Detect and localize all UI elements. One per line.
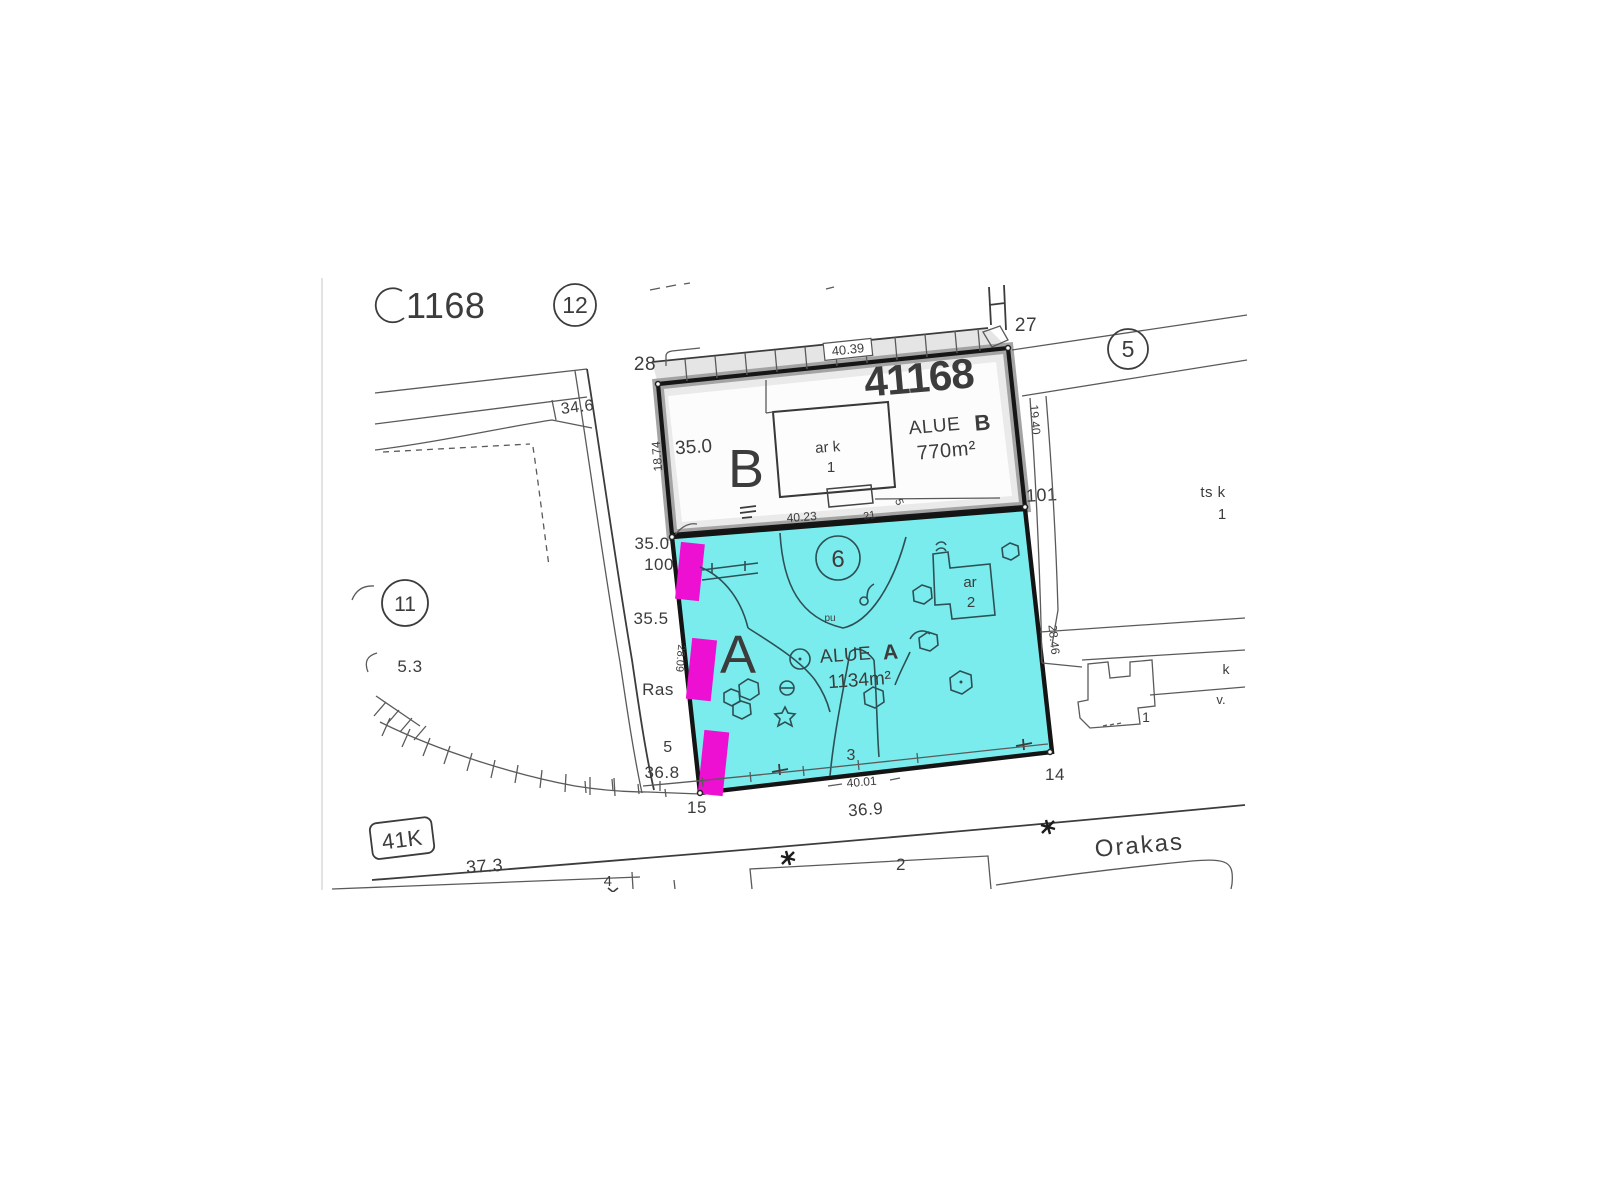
building-a-number: 2 <box>967 594 975 611</box>
corner-15: 15 <box>687 798 707 817</box>
building-a-label: ar <box>963 574 976 591</box>
pu-note: pu <box>824 613 835 624</box>
elevation-36-9: 36.9 <box>847 799 883 820</box>
right-building-number: 1 <box>1142 709 1150 725</box>
elevation-5-3: 5.3 <box>397 657 422 676</box>
area-a-size: 1134m² <box>827 668 891 693</box>
overlay-letter-a: A <box>720 625 756 685</box>
ras-label: Ras <box>642 680 674 699</box>
building-b-label: ar k <box>815 438 842 457</box>
dim-a-left-28-09: 28.09 <box>673 644 687 672</box>
ts-k-label: ts k <box>1200 484 1225 501</box>
elevation-35-5: 35.5 <box>633 609 668 628</box>
dim-a-bottom-40-01: 40.01 <box>846 774 877 791</box>
elevation-36-8: 36.8 <box>644 763 679 782</box>
building-b-number: 1 <box>827 459 835 476</box>
circle-5-label: 5 <box>1122 336 1135 362</box>
alue-a-word: ALUE <box>819 643 872 668</box>
contour-35-0-b: 35.0 <box>674 436 712 460</box>
alue-b-letter: B <box>973 409 991 435</box>
road-number-2: 2 <box>896 855 906 874</box>
corner-28: 28 <box>634 354 656 375</box>
plot-a: 6 ar 2 pu ALUE A 1134m² A 3 <box>672 509 1063 796</box>
circle-12-label: 12 <box>562 292 588 318</box>
corner-27: 27 <box>1015 315 1037 336</box>
alue-b-word: ALUE <box>908 414 961 439</box>
corner-100: 100 <box>644 555 674 574</box>
corner-14: 14 <box>1045 765 1065 784</box>
circle-11-label: 11 <box>394 593 416 616</box>
elevation-5: 5 <box>663 739 672 756</box>
elevation-37-3: 37.3 <box>465 855 503 878</box>
right-v-label: v. <box>1216 692 1225 707</box>
road-number-4: 4 <box>604 873 613 890</box>
dim-b-right-19-40: 19.40 <box>1027 404 1044 435</box>
dim-b-bottom-40-23: 40.23 <box>786 509 817 525</box>
block-41k-label: 41K <box>380 825 423 855</box>
circle-6-label: 6 <box>831 546 844 573</box>
plot-title-41168: 41168 <box>862 349 976 405</box>
elevation-35-0: 35.0 <box>634 534 669 553</box>
neighbor-plot-number: 1168 <box>406 285 485 326</box>
overlay-letter-b: B <box>728 439 764 499</box>
alue-a-letter: A <box>882 641 899 665</box>
ts-k-number: 1 <box>1218 506 1226 523</box>
dim-b-left-18-74: 18.74 <box>649 440 666 471</box>
right-k-label: k <box>1223 661 1231 677</box>
path-number-3: 3 <box>847 747 856 764</box>
cadastral-map-svg: 1168 12 11 5.3 34.6 40.39 41168 <box>0 0 1600 1200</box>
